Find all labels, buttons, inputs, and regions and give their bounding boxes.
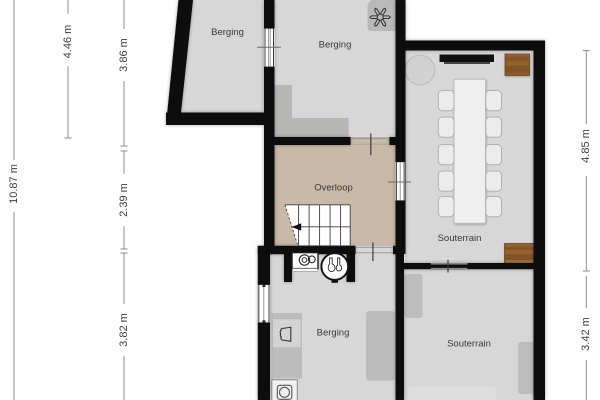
svg-text:3.86 m: 3.86 m xyxy=(118,38,130,72)
svg-text:4.46 m: 4.46 m xyxy=(62,25,74,59)
svg-text:Berging: Berging xyxy=(317,328,350,339)
svg-text:Berging: Berging xyxy=(319,40,352,51)
svg-text:2.39 m: 2.39 m xyxy=(118,183,130,217)
svg-text:Souterrain: Souterrain xyxy=(438,233,482,244)
svg-text:Overloop: Overloop xyxy=(314,183,353,194)
svg-text:3.82 m: 3.82 m xyxy=(118,313,130,347)
svg-text:Souterrain: Souterrain xyxy=(447,339,491,350)
svg-text:Berging: Berging xyxy=(211,27,244,38)
svg-text:3.42 m: 3.42 m xyxy=(580,317,592,351)
svg-text:4.85 m: 4.85 m xyxy=(580,129,592,163)
svg-text:10.87 m: 10.87 m xyxy=(8,164,20,204)
